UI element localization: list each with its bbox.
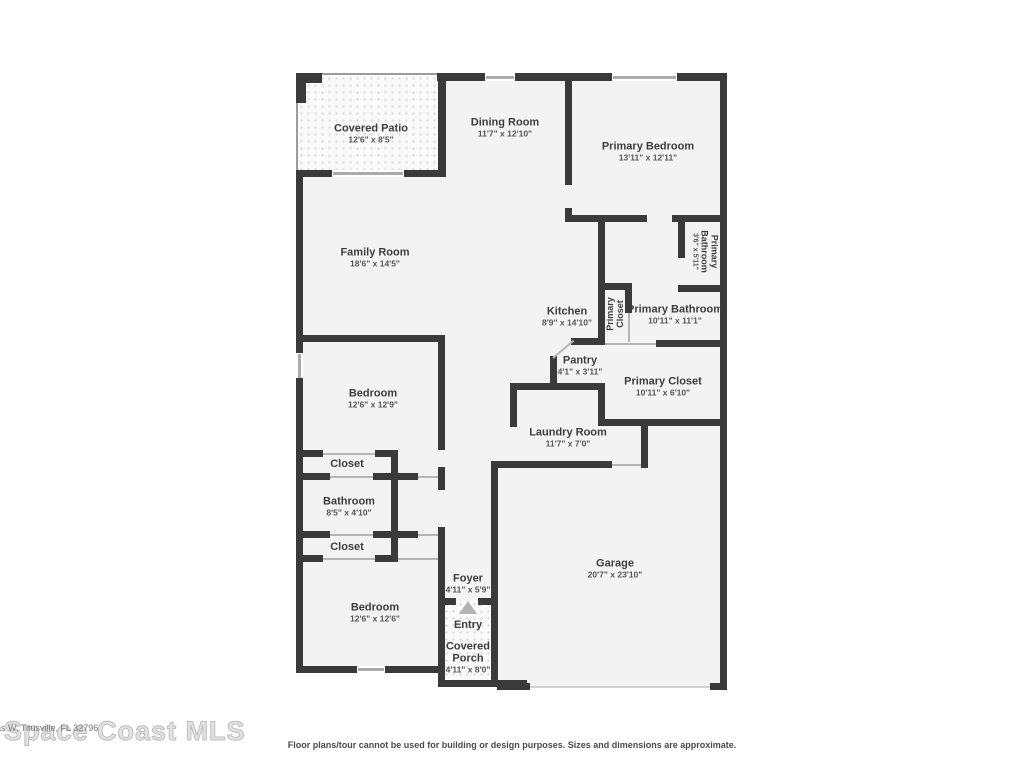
room-label-primary-closet: Primary Closet10'11" x 6'10"	[624, 376, 702, 399]
room-label-kitchen: Kitchen8'9" x 14'10"	[542, 306, 592, 329]
wall-segment	[656, 340, 727, 347]
door-opening-line	[418, 476, 438, 478]
room-label-garage: Garage20'7" x 23'10"	[588, 558, 643, 581]
window	[485, 73, 515, 81]
wall-segment	[491, 461, 612, 468]
door-opening-line	[323, 558, 375, 560]
window	[357, 666, 385, 673]
wall-segment	[296, 531, 330, 538]
wall-segment	[296, 170, 303, 353]
wall-segment	[296, 335, 445, 342]
floor-plan-canvas: Covered Patio12'6" x 8'5" Dining Room11'…	[0, 0, 1024, 768]
wall-segment	[391, 450, 398, 562]
door-opening-line	[330, 534, 373, 536]
door-opening-line	[398, 558, 438, 560]
wall-segment	[565, 215, 647, 222]
window	[332, 170, 404, 177]
room-label-closet-2: Closet	[330, 541, 364, 553]
room-label-covered-patio: Covered Patio12'6" x 8'5"	[334, 123, 408, 146]
wall-segment	[296, 555, 323, 562]
wall-segment	[296, 473, 330, 480]
room-label-primary-bedroom: Primary Bedroom13'11" x 12'11"	[602, 141, 694, 164]
wall-segment	[710, 683, 727, 690]
room-label-dining-room: Dining Room11'7" x 12'10"	[471, 117, 539, 140]
wall-segment	[438, 335, 445, 450]
room-label-closet-1: Closet	[330, 458, 364, 470]
wall-segment	[510, 383, 517, 427]
door-opening-line	[323, 453, 375, 455]
wall-segment	[478, 598, 498, 605]
wall-segment	[296, 73, 306, 103]
window	[296, 353, 303, 378]
wall-segment	[404, 170, 446, 177]
room-label-primary-bathroom: Primary Bathroom10'11" x 11'1"	[627, 304, 723, 327]
room-label-entry: Entry	[454, 619, 482, 631]
wall-segment	[296, 666, 357, 673]
door-opening-line	[612, 464, 641, 466]
entry-arrow-icon	[459, 601, 477, 614]
room-label-covered-porch: Covered Porch4'11" x 8'0"	[436, 641, 500, 676]
door-opening-line	[330, 476, 373, 478]
wall-segment	[512, 383, 600, 390]
address-watermark: as W, Titusville, FL 32796	[0, 723, 98, 733]
room-label-family-room: Family Room18'6" x 14'5"	[340, 247, 409, 270]
room-label-bedroom-1: Bedroom12'6" x 12'9"	[348, 388, 398, 411]
room-label-foyer: Foyer4'11" x 5'9"	[446, 573, 491, 596]
wall-segment	[678, 285, 727, 292]
wall-segment	[720, 73, 727, 690]
disclaimer-text: Floor plans/tour cannot be used for buil…	[0, 740, 1024, 750]
wall-segment	[438, 73, 446, 177]
window	[612, 73, 677, 81]
room-label-primary-bathroom-small: Primary Bathroom3'6" x 5'11"	[683, 218, 727, 285]
door-opening-line	[418, 534, 438, 536]
room-label-bathroom: Bathroom8'5" x 4'10"	[323, 496, 375, 519]
room-label-laundry-room: Laundry Room11'7" x 7'0"	[529, 427, 607, 450]
wall-segment	[641, 419, 648, 468]
wall-segment	[565, 73, 572, 185]
wall-segment	[296, 378, 303, 673]
room-label-pantry: Pantry4'1" x 3'11"	[558, 355, 603, 378]
wall-segment	[598, 419, 727, 426]
wall-segment	[515, 73, 612, 81]
door-opening-line	[605, 343, 656, 345]
door-opening-line	[530, 686, 710, 688]
wall-segment	[497, 683, 530, 690]
wall-segment	[440, 598, 456, 605]
wall-segment	[296, 450, 323, 457]
wall-segment	[438, 467, 445, 490]
room-label-bedroom-2: Bedroom12'6" x 12'6"	[350, 602, 400, 625]
